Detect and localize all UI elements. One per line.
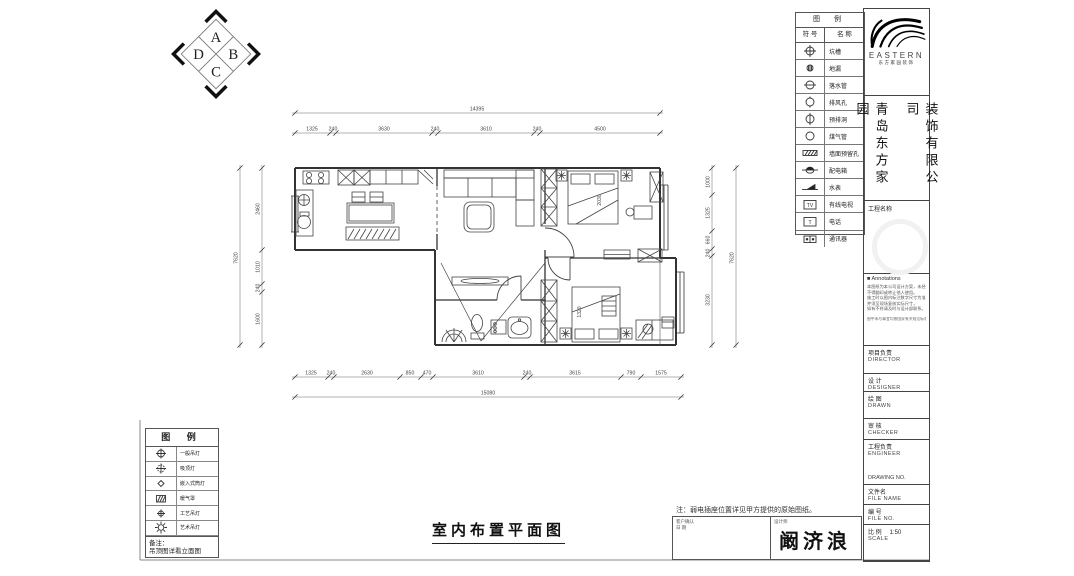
tv-cabinet [452,277,508,285]
titleblock-field-designer: 设 计DESIGNER [864,374,929,392]
drawing-sheet: 1439513252403630240361024045001325240263… [0,0,1074,576]
annotations-title: ■ Annotations [867,276,926,282]
field-label-en: DIRECTOR [868,357,929,363]
field-label-en: FILE NO. [868,516,929,522]
dim-label: 3610 [472,371,484,377]
logo-letter-c: C [211,65,221,81]
dimensions-layer: 1439513252403630240361024045001325240263… [234,107,739,400]
titleblock-field-director: 项目负责DIRECTOR [864,346,929,374]
dim-label: 15080 [481,391,496,397]
vent-icon [801,95,819,109]
hole-icon [801,112,819,126]
titleblock-field-checker: 审 核CHECKER [864,419,929,440]
dim-label: 3610 [480,127,492,133]
spot-icon [153,477,169,490]
brand-subtitle: 东方家园装饰 [864,60,929,66]
legend-left-title: 图 例 [146,429,218,447]
titleblock-field-scale: 比 例1:50SCALE [864,525,929,561]
dim-label: 1575 [655,371,667,377]
field-label-en: SCALE [868,536,929,542]
legend-row-comm: 通讯器 [796,231,864,247]
plan-note: 注：弱电插座位置详见甲方提供的原始图纸。 [676,505,816,515]
kitchen-cabinets [338,170,433,185]
annotations-box: ■ Annotations 本图纸为本公司设计方案，未经许可不得翻印或转让他人使… [864,274,929,346]
field-label-cn: 比 例1:50 [868,527,929,536]
dim-label: 1325 [306,127,318,133]
dim-label: 1325 [305,371,317,377]
logo-letter-d: D [193,47,204,63]
project-name-label: 工程名称 [864,201,929,213]
dim-label: 240 [431,127,440,133]
company-col-right: 装饰有限公司 [903,102,941,200]
drain-icon [801,61,819,75]
legend-label: 艺术吊灯 [177,524,200,531]
adcb-logo: A D B C [170,8,262,100]
eastern-logo: EASTERN 东方家园装饰 [864,9,929,96]
wardrobe-bedroom1 [541,169,557,226]
field-label-cn: 工程负责 [868,442,929,451]
svg-text:T: T [808,220,812,226]
dim-label: 4500 [594,127,606,133]
sofa [444,170,534,226]
designer-signature: 阚济浪 [779,525,851,554]
dim-label: 1000 [706,176,712,188]
annotations-footer: 图中未尽事宜均按国家有关规范标准执行 [867,317,926,322]
logo-letter-a: A [211,30,222,46]
heater-icon [153,492,169,505]
legend-label: 排风孔 [825,98,847,107]
legend-row-lamp: 一般吊灯 [146,447,218,462]
legend-left-note: 备注： 吊顶图详看立面图 [146,536,218,556]
legend-col-name: 名 称 [825,28,864,42]
coffee-table [464,202,494,232]
legend-label: 预排洞 [825,115,847,124]
titleblock-field-engineer: 工程负责ENGINEERDRAWING NO. [864,440,929,485]
note-label: 备注： [149,540,169,547]
dining-table [346,192,399,240]
legend-label: 地漏 [825,64,841,73]
furniture-layer [296,169,674,342]
nightstand-lamps-bedroom1 [556,170,632,181]
legend-row-phone: T电话 [796,213,864,230]
craft-icon [153,507,169,520]
comm-icon [800,233,820,245]
legend-label: 配电箱 [825,166,847,175]
dim-label: 2460 [256,203,262,215]
project-name-box: 工程名称 [864,201,929,274]
annotation-line: 本图纸为本公司设计方案，未经许可 [867,284,926,290]
scale-value: 1:50 [890,530,902,536]
drawing-no-label: DRAWING NO. [868,475,906,481]
power-icon [800,164,820,176]
legend-label: 一般吊灯 [177,450,200,457]
field-label-cn: 设 计 [868,376,929,385]
stove [303,171,329,184]
lamp-icon [153,447,169,460]
legend-left: 图 例 一般吊灯吸顶灯嵌入式筒灯暖气罩工艺吊灯艺术吊灯 备注： 吊顶图详看立面图 [145,428,219,558]
dim-label: 2630 [361,371,373,377]
eastern-swoosh-icon [866,11,928,53]
tv-icon: TV [800,198,820,211]
shower [442,328,466,342]
legend-label: 有线电视 [825,200,853,209]
legend-row-craft: 工艺吊灯 [146,506,218,521]
stamp-watermark [872,219,928,275]
dim-label: 660 [706,236,712,245]
bed-bedroom1 [568,171,618,224]
signature-block: 客户确认 日 期 设计师 阚济浪 [672,516,862,560]
legend-label: 吸顶灯 [177,465,195,472]
legend-row-art: 艺术吊灯 [146,521,218,536]
bath-cabinet [491,320,506,334]
legend-label: 暖气罩 [177,495,195,502]
svg-text:TV: TV [807,203,814,209]
desk-bedroom2 [636,317,674,340]
phone-icon: T [800,215,820,228]
logo-letter-b: B [228,47,238,63]
dim-label: 470 [423,371,432,377]
dim-label: 7620 [730,252,736,264]
titleblock: EASTERN 东方家园装饰 青岛东方家园 装饰有限公司 工程名称 ■ Anno… [863,8,930,562]
wash-basin [508,317,531,338]
interior-walls-layer [435,168,676,345]
field-label-cn: 项目负责 [868,348,929,357]
wardrobe-bedroom2 [541,280,557,342]
legend-label: 坑槽 [825,47,841,56]
field-label-cn: 编 号 [868,507,929,516]
dim-label: 3615 [569,371,581,377]
meter-icon [800,181,820,193]
company-name: 青岛东方家园 装饰有限公司 [864,96,929,201]
field-label-cn: 审 核 [868,421,929,430]
dim-label: 240 [329,127,338,133]
inline-dim-label: 2030 [597,194,603,205]
legend-row-spot: 嵌入式筒灯 [146,477,218,492]
dim-label: 1010 [256,261,262,273]
dim-label: 790 [627,371,636,377]
company-col-left: 青岛东方家园 [853,102,891,200]
inline-dim-label: 1320 [577,306,583,317]
dim-label: 3630 [378,127,390,133]
dim-label: 3230 [706,294,712,306]
legend-label: 水表 [825,183,841,192]
field-label-en: FILE NAME [868,496,929,502]
art-icon [153,520,169,535]
pit-icon [801,44,819,58]
titleblock-field-file-no-: 编 号FILE NO. [864,505,929,525]
dim-label: 240 [327,371,336,377]
gas-icon [801,129,819,143]
legend-label: 落水管 [825,81,847,90]
nightstand-lamps-bedroom2 [560,328,632,339]
field-label-en: CHECKER [868,430,929,436]
legend-row-pit: 坑槽 [796,43,864,60]
legend-label: 嵌入式筒灯 [177,480,205,487]
radiator-units [604,249,662,262]
legend-row-drain: 地漏 [796,60,864,77]
kitchen-sink [296,190,313,236]
dim-label: 7620 [234,252,240,264]
field-label-en: DRAWN [868,403,929,409]
titleblock-field-file-name: 文件名FILE NAME [864,485,929,505]
legend-row-heater: 暖气罩 [146,491,218,506]
legend-label: 工艺吊灯 [177,510,200,517]
annotation-line: 如有不符请及时与设计部联系。 [867,306,926,312]
wallhole-icon [800,147,820,159]
dim-label: 240 [523,371,532,377]
legend-row-downpipe: 落水管 [796,77,864,94]
designer-signature-box: 设计师 阚济浪 [771,517,861,559]
dim-label: 1600 [256,313,262,325]
dim-label: 240 [706,249,712,258]
field-label-en: DESIGNER [868,385,929,391]
dim-label: 1325 [706,207,712,219]
downpipe-icon [801,78,819,92]
field-label-cn: 绘 图 [868,394,929,403]
toilet [471,315,484,340]
dim-label: 14395 [470,107,485,113]
legend-col-symbol: 符 号 [796,28,825,42]
legend-label: 通讯器 [825,234,847,243]
dim-label: 240 [256,284,262,293]
titleblock-field-drawn: 绘 图DRAWN [864,392,929,419]
note-text: 吊顶图详看立面图 [149,548,201,555]
field-label-en: ENGINEER [868,451,929,457]
legend-right-title: 图 例 [796,13,864,28]
dim-label: 240 [533,127,542,133]
brand-name: EASTERN [864,51,929,60]
field-label-cn: 文件名 [868,487,929,496]
dim-label: 850 [406,371,415,377]
legend-row-ceil: 吸顶灯 [146,462,218,477]
legend-label: 煤气管 [825,132,847,141]
plan-title: 室内布置平面图 [432,519,565,544]
client-confirm-box: 客户确认 日 期 [673,517,771,559]
date-label: 日 期 [676,525,767,531]
cabinet-bedroom1 [626,172,663,219]
ceil-icon [153,462,169,475]
annotation-line: 施工时以图内标注数字尺寸为准， [867,295,926,301]
legend-label: 电话 [825,217,841,226]
